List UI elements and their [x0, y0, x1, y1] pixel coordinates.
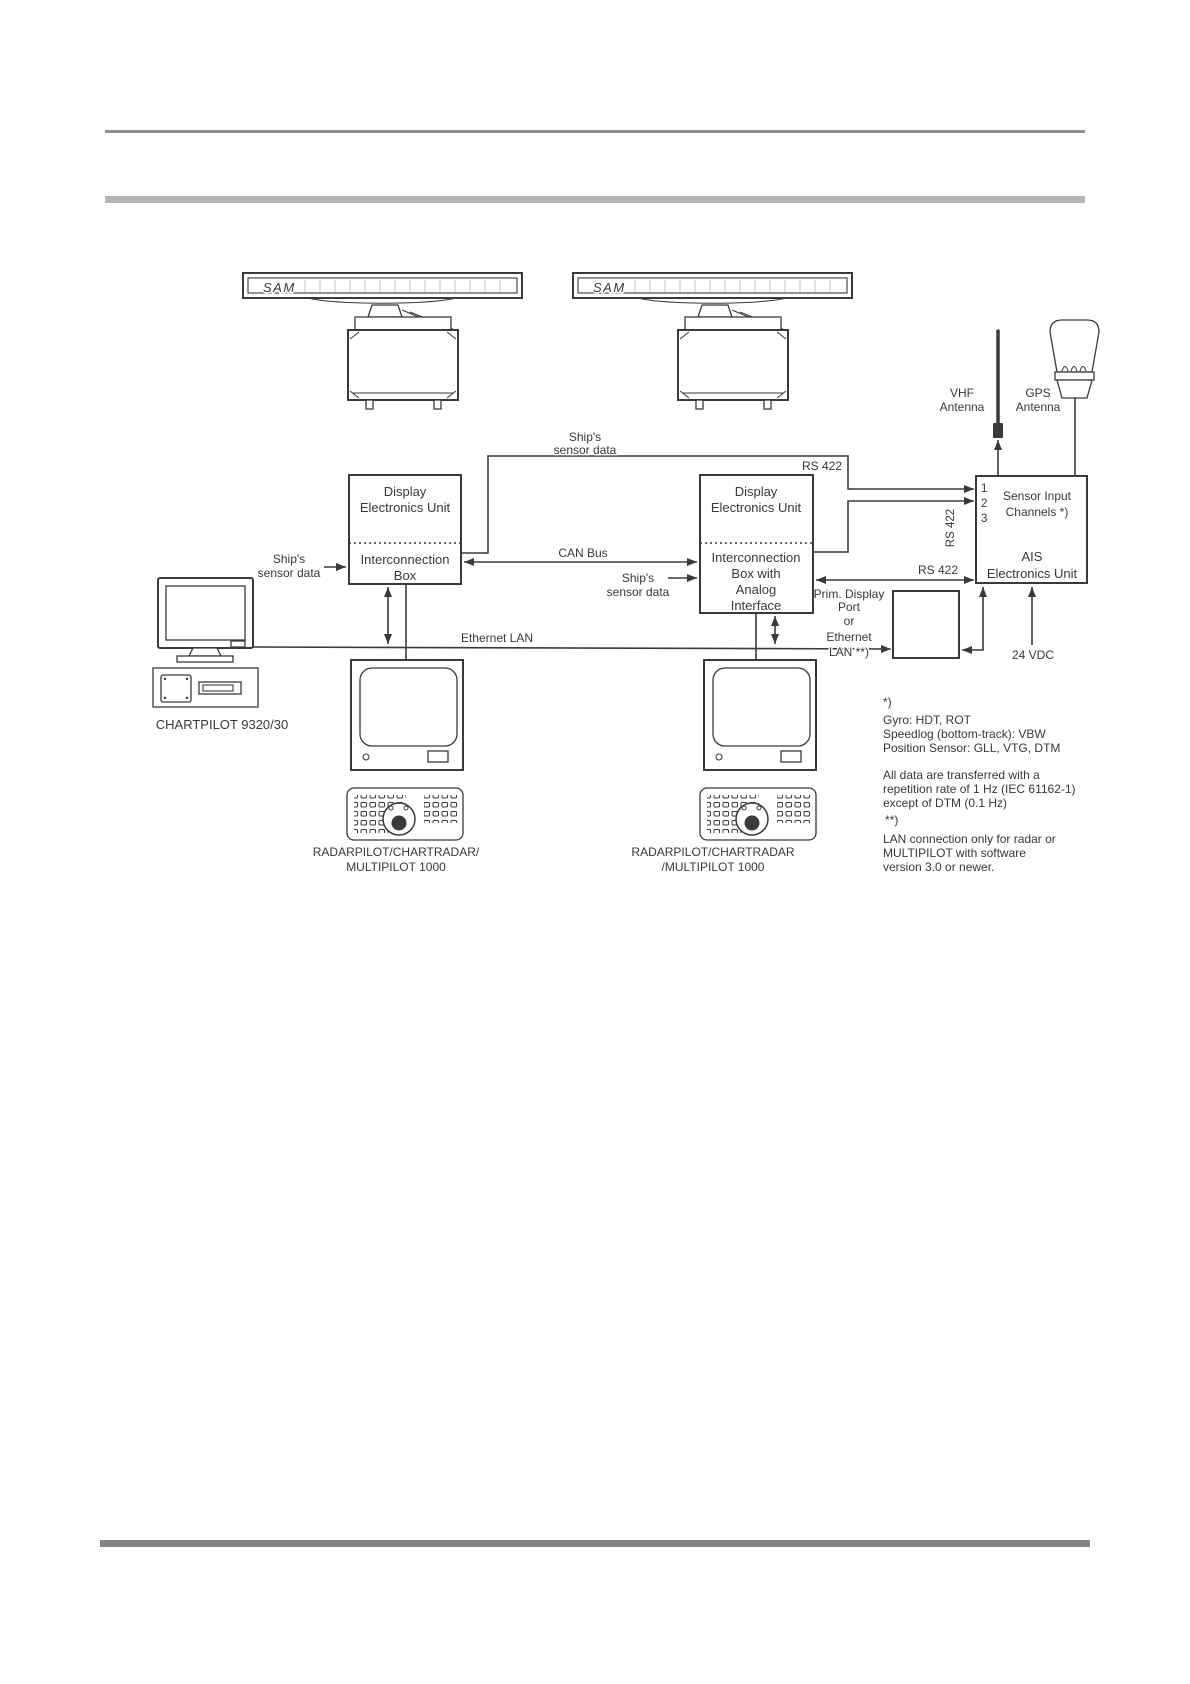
note-lan-1: LAN connection only for radar or [883, 832, 1056, 846]
deu-right-box: Display Electronics Unit Interconnection… [700, 475, 813, 613]
chartpilot-unit: CHARTPILOT 9320/30 [153, 578, 288, 732]
note-doublestar: **) [885, 813, 898, 827]
ships-sensor-r-1: Ship's [622, 571, 654, 585]
deu-right-sub-4: Interface [731, 598, 782, 613]
deu-left-box: Display Electronics Unit Interconnection… [349, 475, 461, 584]
ships-sensor-top-2: sensor data [554, 443, 617, 457]
deu-right-sub-2: Box with [731, 566, 780, 581]
deu-left-title-2: Electronics Unit [360, 500, 451, 515]
prim-display-1: Prim. Display [814, 587, 885, 601]
monitor-right [704, 660, 816, 770]
gps-antenna: GPS Antenna [1016, 320, 1099, 476]
note-data-1: All data are transferred with a [883, 768, 1040, 782]
ais-channel-3: 3 [981, 513, 987, 525]
monitor-left [351, 660, 463, 770]
vhf-label-1: VHF [950, 386, 974, 400]
gps-label-1: GPS [1025, 386, 1050, 400]
deu-right-sub-3: Analog [736, 582, 776, 597]
ships-sensor-r-2: sensor data [607, 585, 670, 599]
junction-box [893, 591, 959, 658]
workstation-left-label-2: MULTIPILOT 1000 [346, 860, 446, 874]
ais-box: 1 2 3 Sensor Input Channels *) AIS Elect… [976, 476, 1087, 583]
prim-display-2: Port [838, 600, 861, 614]
prim-display-5: LAN **) [829, 645, 869, 659]
ais-input-2: Channels *) [1006, 505, 1069, 519]
radar-antenna-1 [243, 273, 522, 409]
deu-left-sub-1: Interconnection [361, 552, 450, 567]
prim-display-3: or [844, 614, 855, 628]
power-label: 24 VDC [1012, 648, 1054, 662]
deu-right-sub-1: Interconnection [712, 550, 801, 565]
footnotes: *) Gyro: HDT, ROT Speedlog (bottom-track… [883, 695, 1076, 874]
ais-input-1: Sensor Input [1003, 489, 1072, 503]
vhf-label-2: Antenna [940, 400, 985, 414]
note-gyro: Gyro: HDT, ROT [883, 713, 972, 727]
system-diagram: SAM [0, 0, 1190, 1684]
note-data-3: except of DTM (0.1 Hz) [883, 796, 1007, 810]
junction-ais-link [962, 587, 983, 650]
rs422-top-label: RS 422 [802, 459, 842, 473]
prim-display-4: Ethernet [826, 630, 872, 644]
note-lan-3: version 3.0 or newer. [883, 860, 994, 874]
workstation-right-label-2: /MULTIPILOT 1000 [662, 860, 765, 874]
deu-left-sub-2: Box [394, 568, 417, 583]
vhf-antenna: VHF Antenna [940, 331, 1003, 476]
ethernet-lan-label: Ethernet LAN [461, 631, 533, 645]
ships-sensor-cp-1: Ship's [273, 552, 305, 566]
keyboard-left [347, 788, 463, 840]
keyboard-right [700, 788, 816, 840]
line-ethernet-lan [253, 647, 891, 649]
workstation-right-label-1: RADARPILOT/CHARTRADAR [631, 845, 794, 859]
deu-left-title-1: Display [384, 484, 427, 499]
gps-label-2: Antenna [1016, 400, 1061, 414]
note-lan-2: MULTIPILOT with software [883, 846, 1026, 860]
deu-right-title-1: Display [735, 484, 778, 499]
rs422-ch3-label: RS 422 [918, 563, 958, 577]
ais-name-1: AIS [1022, 549, 1043, 564]
note-star: *) [883, 695, 892, 709]
radar-antenna-2 [573, 273, 852, 409]
note-position: Position Sensor: GLL, VTG, DTM [883, 741, 1060, 755]
workstation-left-label-1: RADARPILOT/CHARTRADAR/ [313, 845, 480, 859]
chartpilot-label: CHARTPILOT 9320/30 [156, 717, 288, 732]
can-bus-label: CAN Bus [558, 546, 607, 560]
manual-page: { "page": { "background": "#ffffff", "he… [0, 0, 1190, 1684]
note-data-2: repetition rate of 1 Hz (IEC 61162-1) [883, 782, 1076, 796]
ais-channel-1: 1 [981, 483, 987, 495]
rs422-vertical-label: RS 422 [945, 509, 957, 547]
ships-sensor-top-1: Ship's [569, 430, 601, 444]
note-speedlog: Speedlog (bottom-track): VBW [883, 727, 1046, 741]
ais-name-2: Electronics Unit [987, 566, 1078, 581]
deu-right-title-2: Electronics Unit [711, 500, 802, 515]
ais-channel-2: 2 [981, 498, 987, 510]
ships-sensor-cp-2: sensor data [258, 566, 321, 580]
